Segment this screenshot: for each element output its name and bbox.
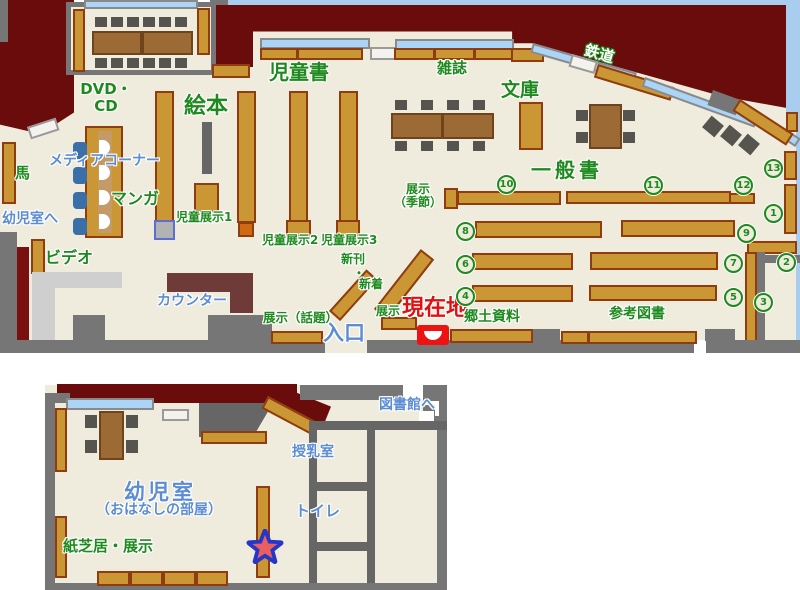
chair <box>447 141 459 151</box>
star-marker <box>246 529 284 567</box>
shelf-number-7: 7 <box>724 254 743 273</box>
shelf <box>73 9 85 72</box>
chair <box>421 100 433 110</box>
shelf-number-9: 9 <box>737 224 756 243</box>
window-study-room <box>84 0 198 9</box>
chair <box>159 17 171 27</box>
label-child-display2: 児童展示2 <box>262 234 318 247</box>
shelf-1 <box>784 184 797 234</box>
room-wall <box>309 482 375 491</box>
label-display-small: 展示 <box>376 305 400 318</box>
shelf <box>97 571 130 586</box>
label-kamishibai: 紙芝居・展示 <box>63 538 153 555</box>
shelf <box>474 48 514 60</box>
shelf <box>55 408 67 472</box>
wall-stub <box>705 329 735 341</box>
chair <box>85 415 97 428</box>
room-wall <box>309 421 447 430</box>
shelf-column <box>237 91 256 223</box>
wall-corner <box>0 0 8 42</box>
media-chair <box>73 218 87 235</box>
shelf-row-6 <box>472 253 573 270</box>
library-floor-map: 児童書 雑誌 文庫 鉄道 絵本 DVD・ CD メディアコーナー マンガ 馬 幼… <box>0 0 800 590</box>
chair <box>127 58 139 68</box>
shelf-number-11: 11 <box>644 176 663 195</box>
shelf-number-8: 8 <box>456 222 475 241</box>
closed-area-band <box>213 0 253 67</box>
shelf-column <box>289 91 308 222</box>
label-counter: カウンター <box>157 294 227 310</box>
label-horse: 馬 <box>15 165 30 182</box>
shelf-number-12: 12 <box>734 176 753 195</box>
shelf-number-10: 10 <box>497 175 516 194</box>
shelf-number-3: 3 <box>754 293 773 312</box>
label-reference-books: 参考図書 <box>609 307 665 323</box>
label-general-books: 一般書 <box>531 159 603 181</box>
chair <box>175 58 187 68</box>
topics-display-shelf <box>271 331 323 344</box>
chair <box>95 17 107 27</box>
chair <box>395 141 407 151</box>
room-wall <box>367 421 375 583</box>
chair <box>447 100 459 110</box>
room-wall <box>309 542 375 551</box>
chair <box>473 100 485 110</box>
shelf <box>196 571 228 586</box>
chair <box>576 132 588 143</box>
chair <box>111 17 123 27</box>
child-display1-shelf <box>194 183 219 212</box>
chair <box>623 132 635 143</box>
label-display-seasonal: 展示 （季節） <box>392 183 444 210</box>
label-infant-room: 幼児室 <box>124 481 196 505</box>
shelf-number-4: 4 <box>456 287 475 306</box>
current-location-marker <box>417 325 449 345</box>
label-child-display1: 児童展示1 <box>176 211 232 224</box>
window-infant <box>66 398 154 410</box>
counter-return <box>32 272 122 288</box>
wall-left <box>45 396 55 590</box>
study-table <box>142 31 193 55</box>
story-table <box>99 411 124 460</box>
chair <box>85 440 97 453</box>
label-infant-room-sub: （おはなしの部屋） <box>96 503 222 519</box>
seasonal-display-shelf <box>444 188 458 209</box>
chair <box>576 110 588 121</box>
exterior-top <box>228 0 800 5</box>
shelf <box>212 64 250 78</box>
chair <box>623 110 635 121</box>
shelf-number-1: 1 <box>764 204 783 223</box>
shelf-row-5 <box>589 285 717 301</box>
local-materials-shelf <box>450 329 533 343</box>
wall-left <box>0 232 17 345</box>
chair <box>127 17 139 27</box>
upper-floor-map: 児童書 雑誌 文庫 鉄道 絵本 DVD・ CD メディアコーナー マンガ 馬 幼… <box>0 0 800 353</box>
reference-shelf <box>561 331 589 344</box>
reading-table <box>442 113 494 139</box>
chair <box>143 58 155 68</box>
exterior-right <box>786 0 800 112</box>
closed-area-topleft <box>0 0 74 134</box>
shelf-number-13: 13 <box>764 159 783 178</box>
shelf <box>260 48 298 60</box>
door <box>370 47 396 60</box>
label-video: ビデオ <box>45 249 93 267</box>
counter-desk <box>230 292 253 313</box>
shelf-column <box>339 91 358 222</box>
shelf-row-9 <box>621 220 735 237</box>
chair <box>473 141 485 151</box>
chair <box>143 17 155 27</box>
shelf-end <box>238 222 254 237</box>
shelf <box>786 112 798 132</box>
chair <box>111 58 123 68</box>
label-media-corner: メディアコーナー <box>49 154 160 170</box>
pillar <box>202 122 212 174</box>
shelf <box>394 48 435 60</box>
marker-dome-icon <box>424 331 442 340</box>
counter-return <box>32 288 55 340</box>
label-toilet: トイレ <box>295 503 340 520</box>
chair <box>126 415 138 428</box>
wall-stub <box>73 315 105 340</box>
reading-table <box>391 113 443 139</box>
chair <box>95 58 107 68</box>
label-child-display3: 児童展示3 <box>321 234 377 247</box>
label-picture-books: 絵本 <box>184 95 228 120</box>
label-new-arrivals-1: 新刊 <box>341 253 365 266</box>
wall-stub <box>533 329 560 341</box>
video-shelf <box>31 239 45 274</box>
shelf-number-5: 5 <box>724 288 743 307</box>
shelf <box>130 571 163 586</box>
shelf <box>201 431 267 444</box>
chair <box>159 58 171 68</box>
paperbacks-shelf <box>519 102 543 150</box>
label-paperbacks: 文庫 <box>501 80 539 101</box>
reading-table <box>589 104 622 149</box>
reference-shelf <box>588 331 697 344</box>
shelf-row-8 <box>475 221 602 238</box>
shelf <box>197 8 210 55</box>
label-entrance: 入口 <box>323 322 365 346</box>
media-chair <box>73 192 87 209</box>
label-children-books: 児童書 <box>269 61 329 83</box>
chair <box>395 100 407 110</box>
closed-strip-left <box>17 247 29 345</box>
chair <box>421 141 433 151</box>
chair <box>126 440 138 453</box>
label-local-materials: 郷土資料 <box>464 310 520 326</box>
counter-desk <box>167 273 253 292</box>
label-manga: マンガ <box>111 190 159 208</box>
display-box <box>154 220 175 240</box>
shelf <box>297 48 363 60</box>
shelf <box>163 571 196 586</box>
shelf <box>2 142 16 204</box>
label-nursing-room: 授乳室 <box>292 445 334 461</box>
shelf-row-4 <box>472 285 573 302</box>
shelf-row-7 <box>590 252 718 270</box>
label-to-infant-room: 幼児室へ <box>2 212 58 228</box>
label-dvd-cd: DVD・ CD <box>80 81 132 115</box>
door <box>162 409 189 421</box>
shelf-13 <box>784 151 797 180</box>
chair <box>175 17 187 27</box>
label-to-library: 図書館へ <box>379 398 435 414</box>
label-new-arrivals-2: 新着 <box>359 278 383 291</box>
study-table <box>92 31 142 55</box>
infant-room-map: 図書館へ 授乳室 トイレ 幼児室 （おはなしの部屋） 紙芝居・展示 <box>0 353 800 590</box>
label-magazines: 雑誌 <box>437 60 467 77</box>
shelf-number-6: 6 <box>456 255 475 274</box>
shelf-number-2: 2 <box>777 253 796 272</box>
